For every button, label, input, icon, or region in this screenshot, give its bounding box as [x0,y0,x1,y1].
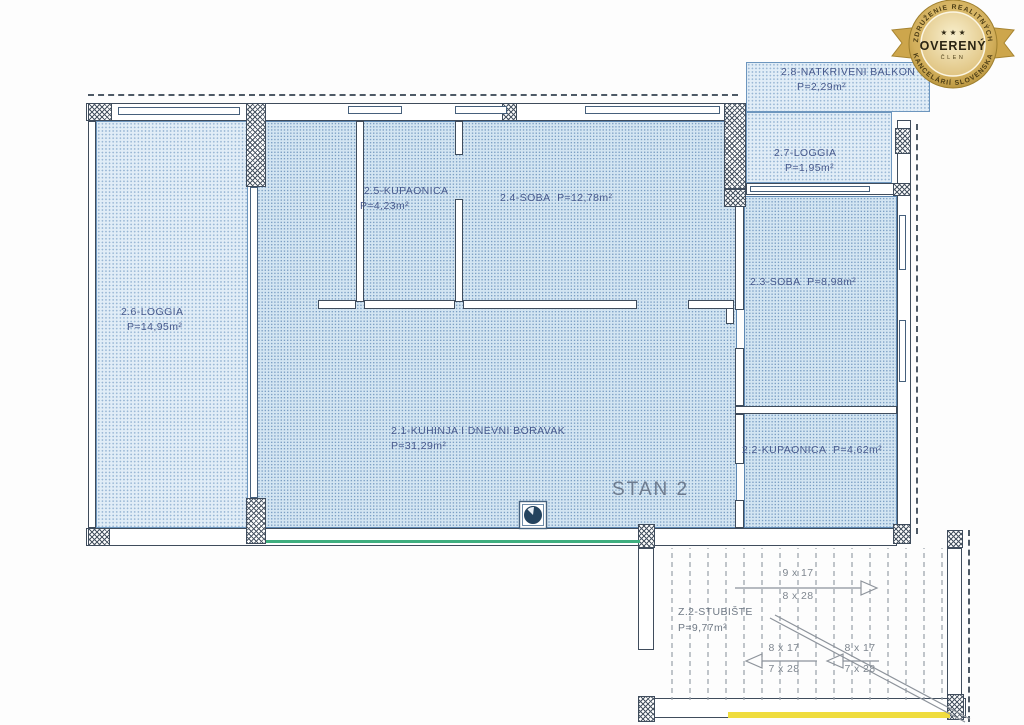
room-kupaonica25-area: P=4,23m² [360,200,409,212]
window-segment [348,106,402,114]
window-segment [118,107,240,115]
room-soba24-label: 2.4-SOBA P=12,78m² [500,192,612,204]
room-kuhinja21-area: P=31,29m² [391,440,446,452]
column-block [895,128,911,154]
window-segment [750,186,870,192]
wall-partition [726,308,734,324]
stairwell-drawing [555,525,1000,725]
column-block [246,498,266,544]
room-kuhinja21-label: 2.1-KUHINJA I DNEVNI BORAVAK [391,425,565,437]
wall-left-exterior [88,121,96,528]
room-stubiste-label: Z.2-STUBIŠTE [678,606,753,618]
room-loggia26-area: P=14,95m² [127,321,182,333]
wall-partition [735,348,744,406]
badge-subtitle: ČLEN [941,54,966,61]
room-kupaonica22-label: 2.2-KUPAONICA P=4,62m² [742,444,882,456]
wall-partition [463,300,637,309]
column-block [88,528,110,546]
wall-partition [455,121,463,155]
wall-partition [735,414,744,464]
badge-stars: ★ ★ ★ [941,28,966,37]
floor-drain-icon [518,500,548,530]
roof-overhang-line-right [916,124,918,534]
room-loggia26-label: 2.6-LOGGIA [121,306,183,318]
window-segment [899,320,906,382]
floor-plan: 2.8-NATKRIVENI BALKON P=2,29m² 2.7-LOGGI… [0,0,1024,725]
wall-partition [735,406,897,414]
room-soba24-area: P=12,78m² [557,192,612,204]
room-balkon-area: P=2,29m² [797,81,846,93]
column-block [246,103,266,187]
column-block [88,103,112,121]
stair-run-low-tread: 7 x 28 [836,663,884,675]
wall-partition [455,199,463,302]
room-kupaonica22-name: 2.2-KUPAONICA [742,444,826,456]
unit-title: STAN 2 [612,479,689,501]
wall-partition [364,300,455,309]
window-segment [455,106,507,114]
window-segment [585,106,720,114]
window-segment [250,187,258,498]
roof-overhang-line [88,94,738,96]
wall-partition [735,196,744,310]
hatch-main-rooms [250,121,737,528]
wall-partition [735,500,744,528]
room-loggia27-label: 2.7-LOGGIA [774,147,836,159]
room-stubiste-area: P=9,77m² [678,622,727,634]
room-kupaonica25-label: 2.5-KUPAONICA [364,185,448,197]
stair-run-up-steps: 9 x 17 [774,567,822,579]
hatch-right-rooms [744,196,897,528]
window-segment [899,215,906,270]
room-soba23-label: 2.3-SOBA P=8,98m² [750,276,856,288]
room-loggia27-area: P=1,95m² [785,162,834,174]
wall-partition [318,300,356,309]
room-soba23-name: 2.3-SOBA [750,276,800,288]
stair-run-low-steps: 8 x 17 [836,642,884,654]
stair-run-mid-tread: 7 x 28 [760,663,808,675]
column-block [893,183,911,196]
column-block [724,189,746,207]
stair-run-up-tread: 8 x 28 [774,590,822,602]
column-block [724,103,746,189]
room-soba24-name: 2.4-SOBA [500,192,550,204]
verified-badge: ZDRUŽENIE REALITNÝCH KANCELÁRIÍ SLOVENSK… [878,0,1024,97]
room-kupaonica22-area: P=4,62m² [833,444,882,456]
badge-title: OVERENÝ [920,38,987,53]
room-soba23-area: P=8,98m² [807,276,856,288]
stair-run-mid-steps: 8 x 17 [760,642,808,654]
